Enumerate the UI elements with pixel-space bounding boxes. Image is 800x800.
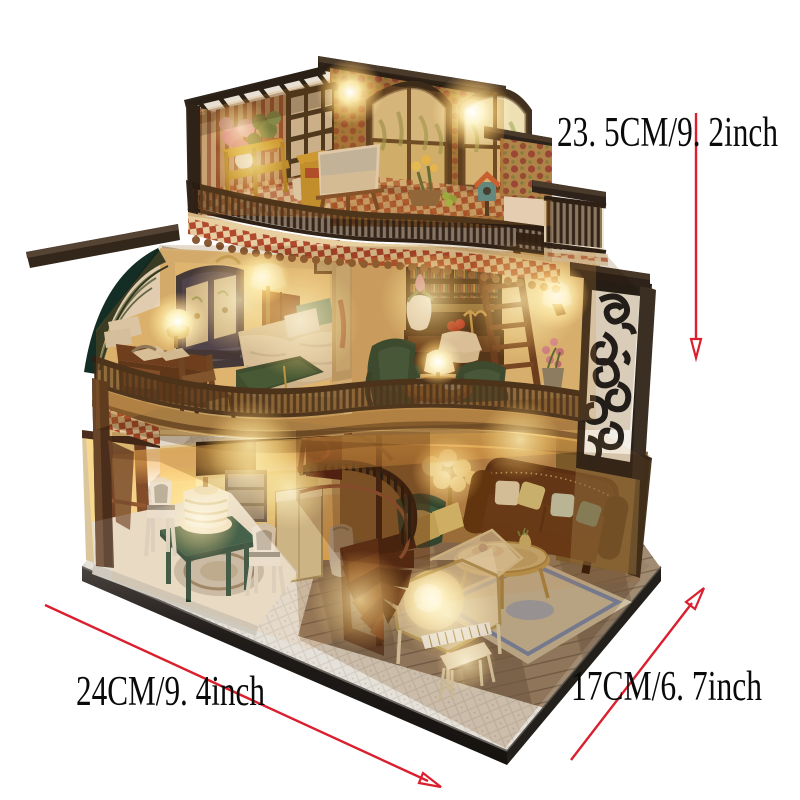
svg-text:23. 5CM/9. 2inch: 23. 5CM/9. 2inch bbox=[557, 110, 778, 156]
svg-text:17CM/6. 7inch: 17CM/6. 7inch bbox=[571, 664, 762, 710]
svg-text:24CM/9. 4inch: 24CM/9. 4inch bbox=[76, 669, 265, 715]
